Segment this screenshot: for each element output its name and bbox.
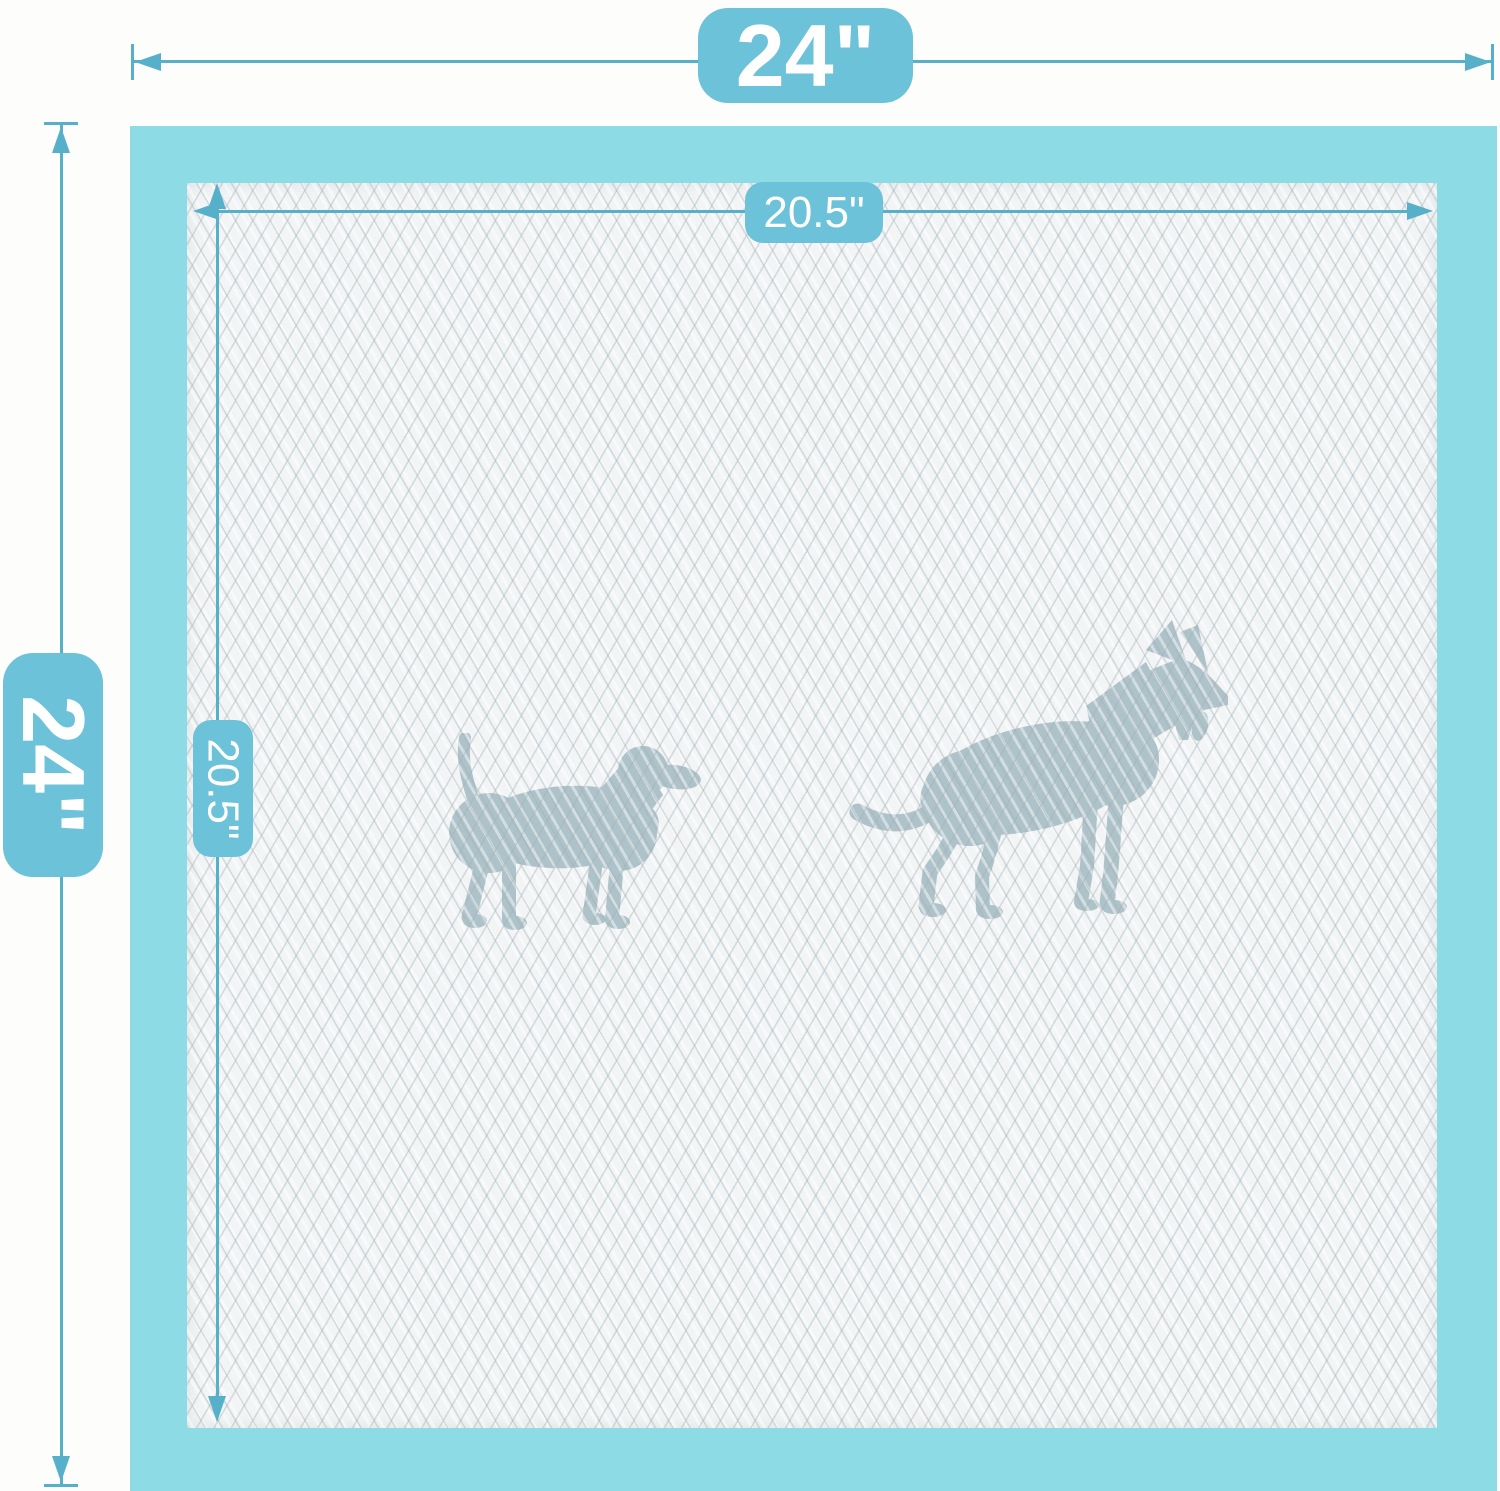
- large-dog-silhouette: [848, 620, 1230, 920]
- outer-width-left-tick: [131, 44, 134, 80]
- right-arrowhead-icon: [1407, 202, 1433, 220]
- outer-height-value: 24": [9, 695, 97, 835]
- up-arrowhead-icon: [52, 127, 70, 153]
- outer-width-label: 24": [698, 8, 913, 103]
- right-arrowhead-icon: [1465, 53, 1491, 71]
- training-pad: [130, 126, 1497, 1491]
- outer-width-right-tick: [1491, 44, 1494, 80]
- down-arrowhead-icon: [52, 1456, 70, 1482]
- absorbent-area: [187, 183, 1437, 1428]
- inner-height-value: 20.5": [201, 738, 245, 839]
- outer-height-top-tick: [44, 122, 78, 125]
- outer-width-value: 24": [736, 12, 876, 100]
- product-image: 24" 24" 20.5" 20.5": [0, 0, 1500, 1491]
- up-arrowhead-icon: [208, 183, 226, 209]
- inner-height-label: 20.5": [193, 720, 253, 857]
- inner-width-label: 20.5": [745, 182, 883, 243]
- outer-height-label: 24": [3, 653, 103, 877]
- quilt-texture: [187, 183, 1437, 1428]
- down-arrowhead-icon: [208, 1396, 226, 1422]
- inner-width-value: 20.5": [763, 191, 864, 235]
- left-arrowhead-icon: [135, 53, 161, 71]
- small-dog-silhouette: [447, 733, 703, 933]
- outer-height-bottom-tick: [44, 1484, 78, 1487]
